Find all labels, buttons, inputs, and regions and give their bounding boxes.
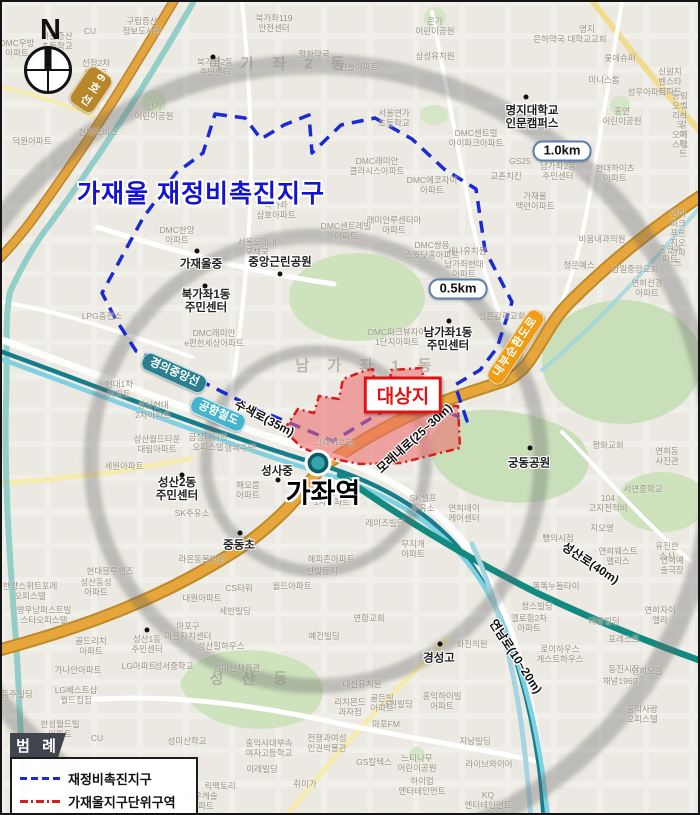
map-screenshot: 구립증산 정보도서관서울증산 초등학교CUDMC우방 아파트선정2차 아파트신가… (0, 0, 700, 815)
legend-item-label: 가재울지구단위구역 (68, 792, 176, 811)
district-title: 가재울 재정비촉진지구 (77, 174, 325, 210)
legend-item-label: 재정비촉진지구 (68, 769, 152, 788)
legend-line-sample (20, 800, 60, 803)
base-map (2, 2, 700, 815)
station-name-label: 가좌역 (286, 472, 361, 511)
legend-item: 재정비촉진지구 (20, 769, 188, 788)
legend-item: 가재울지구단위구역 (20, 792, 188, 811)
legend-title: 범 례 (10, 733, 66, 757)
compass: N (18, 12, 78, 96)
target-site-callout: 대상지 (364, 377, 442, 414)
legend-box: 재정비촉진지구가재울지구단위구역 (10, 757, 198, 815)
legend: 범 례 재정비촉진지구가재울지구단위구역 (10, 733, 198, 815)
compass-rose-icon (24, 46, 72, 94)
compass-north-label: N (40, 14, 61, 47)
legend-line-sample (20, 777, 60, 780)
